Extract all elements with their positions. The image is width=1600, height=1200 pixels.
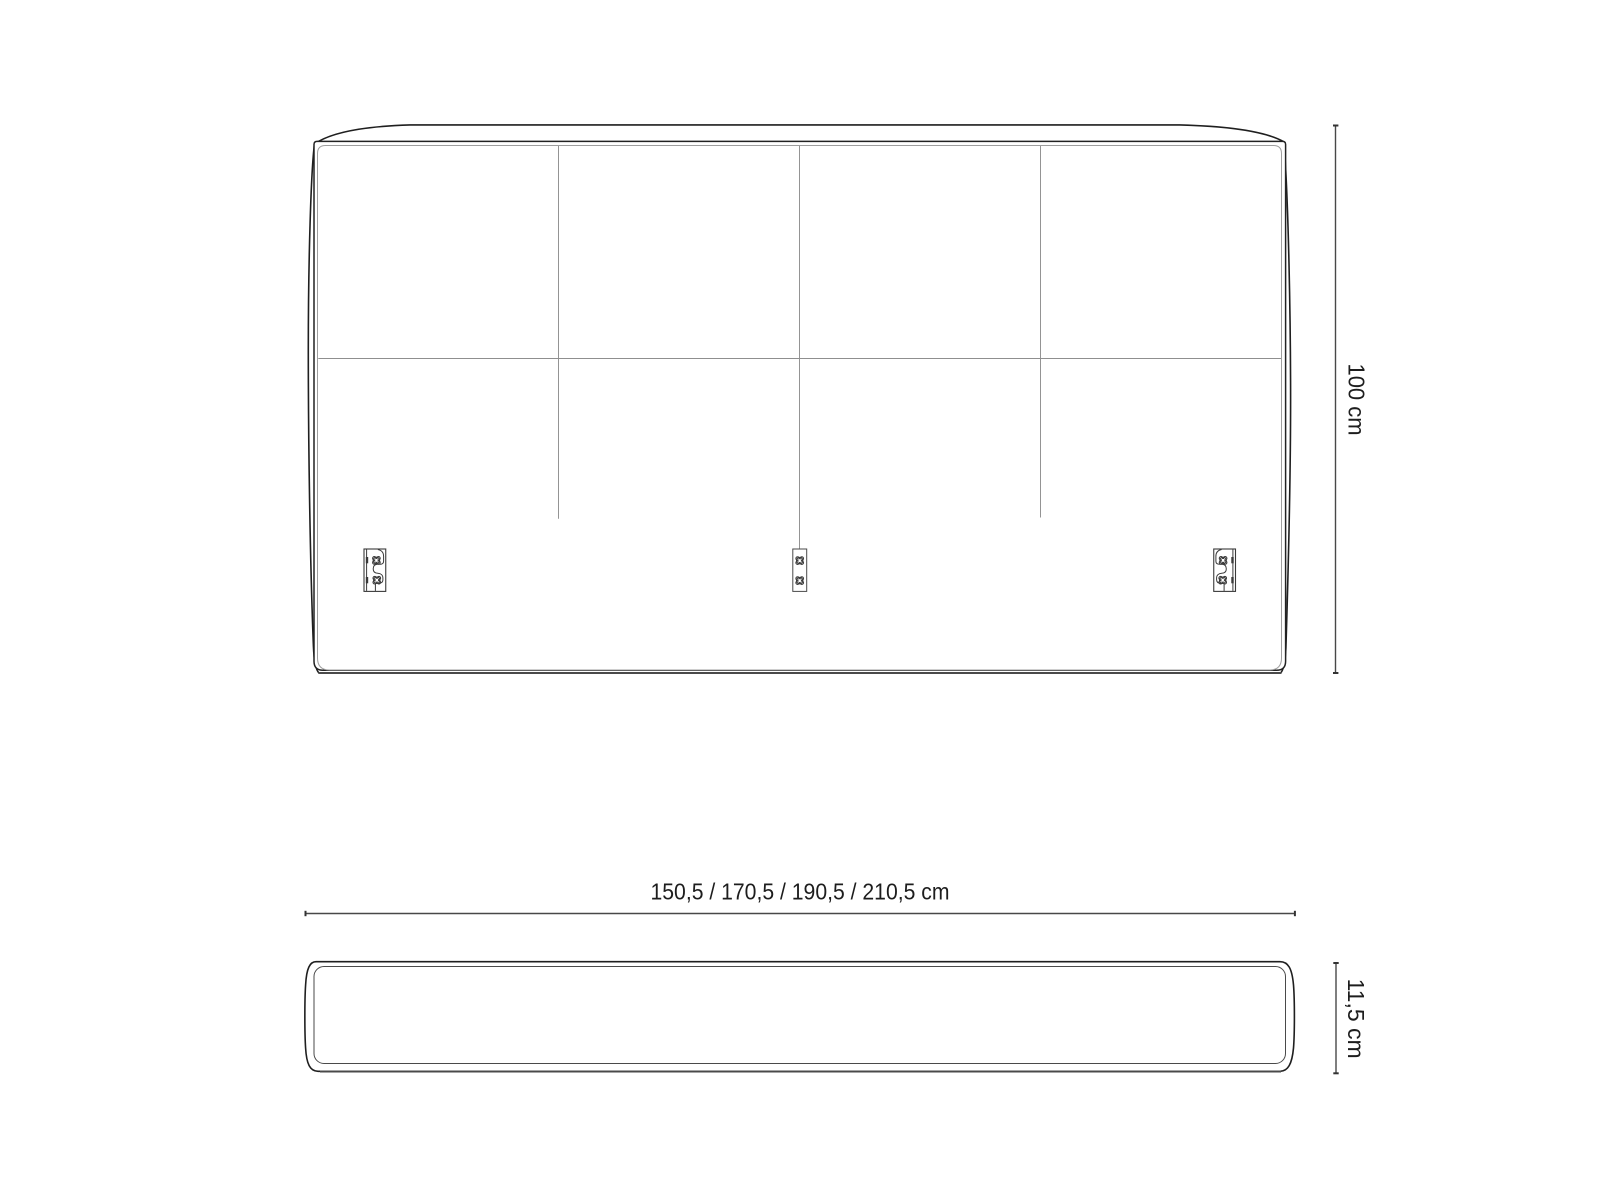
svg-text:11,5 cm: 11,5 cm bbox=[1343, 979, 1369, 1059]
svg-text:150,5 / 170,5 / 190,5 / 210,5: 150,5 / 170,5 / 190,5 / 210,5 cm bbox=[651, 878, 950, 904]
svg-text:100 cm: 100 cm bbox=[1344, 364, 1370, 436]
